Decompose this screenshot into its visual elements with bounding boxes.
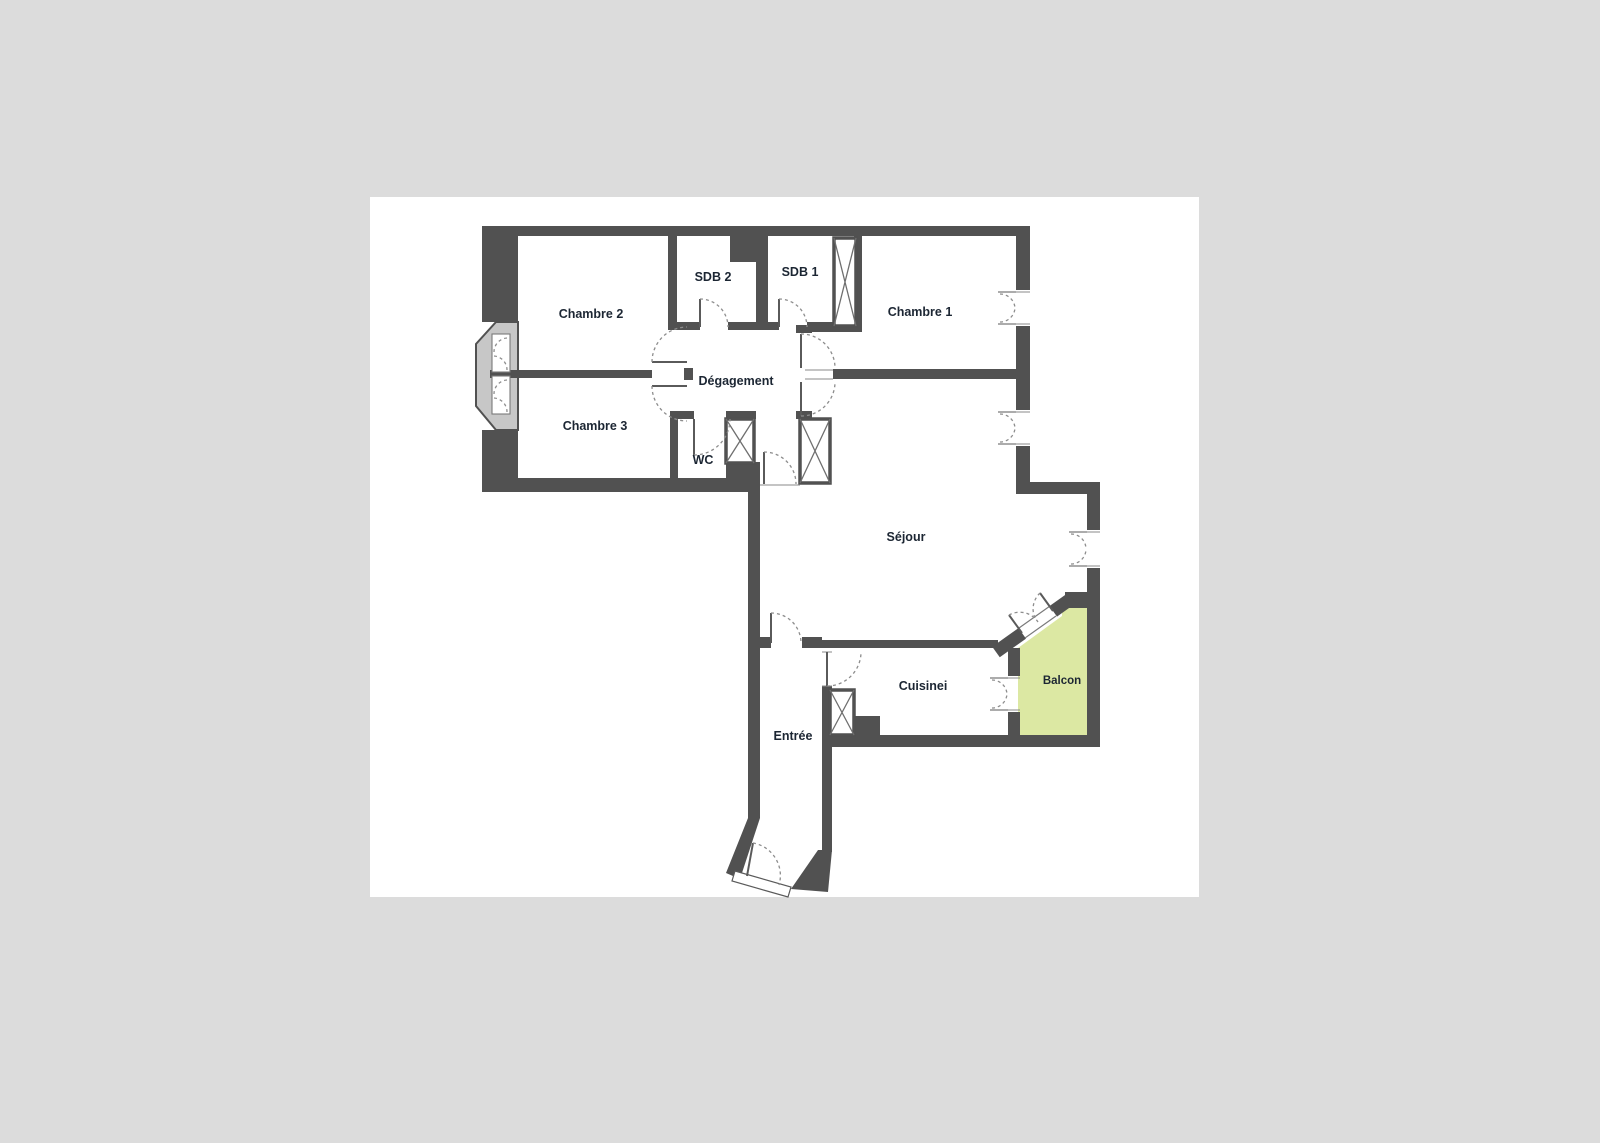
wall-stub-sejour-door-left bbox=[760, 637, 771, 648]
wall-stub-sejour-door-right bbox=[802, 637, 822, 648]
wall-right-c bbox=[1016, 446, 1030, 482]
duct-icon-wc bbox=[726, 419, 754, 463]
wall-sdb2-sdb1 bbox=[756, 236, 768, 330]
wall-cuisine-right-upper bbox=[1008, 648, 1020, 676]
room-label-chambre-3: Chambre 3 bbox=[563, 419, 628, 433]
window-bay-chambre3 bbox=[492, 376, 510, 414]
room-label-sdb-2: SDB 2 bbox=[695, 270, 732, 284]
wall-cuisine-top bbox=[822, 640, 998, 648]
wall-right-lower-a bbox=[1087, 494, 1100, 530]
room-label-entree: Entrée bbox=[774, 729, 813, 743]
duct-icon-cuisine bbox=[830, 690, 854, 735]
floor-plan-canvas: Chambre 2 SDB 2 SDB 1 Chambre 1 Dégageme… bbox=[0, 0, 1600, 1143]
wall-stub-doubledoor-top bbox=[796, 325, 812, 333]
wall-divider-ch2-ch3 bbox=[490, 370, 652, 378]
room-label-chambre-1: Chambre 1 bbox=[888, 305, 953, 319]
wall-hinge-post bbox=[684, 368, 693, 380]
floor-plan: Chambre 2 SDB 2 SDB 1 Chambre 1 Dégageme… bbox=[0, 0, 1600, 1143]
wall-right-b bbox=[1016, 326, 1030, 410]
wall-divider-ch1-sejour bbox=[833, 369, 1016, 379]
wall-under-sdb2-left bbox=[677, 322, 700, 330]
room-label-cuisine: Cuisinei bbox=[899, 679, 948, 693]
wall-cuisine-step bbox=[854, 716, 880, 735]
wall-stub-wc-top bbox=[670, 411, 694, 419]
wall-left-upper bbox=[482, 226, 518, 322]
window-bay-chambre2 bbox=[492, 334, 510, 372]
room-label-wc: WC bbox=[693, 453, 714, 467]
room-label-balcon: Balcon bbox=[1043, 675, 1081, 687]
room-label-chambre-2: Chambre 2 bbox=[559, 307, 624, 321]
wall-right-a bbox=[1016, 226, 1030, 290]
duct-icon-sejour bbox=[800, 419, 830, 483]
wall-under-sdb2-right bbox=[728, 322, 768, 330]
wall-sejour-entree-left bbox=[748, 478, 760, 818]
room-label-degagement: Dégagement bbox=[698, 374, 774, 388]
wall-bottom-left bbox=[482, 478, 760, 492]
room-label-sdb-1: SDB 1 bbox=[782, 265, 819, 279]
wall-step-out bbox=[1016, 482, 1100, 494]
duct-icon-sdb1 bbox=[834, 238, 856, 326]
wall-top bbox=[482, 226, 1030, 236]
wall-chambre2-sdb2 bbox=[668, 236, 677, 330]
room-label-sejour: Séjour bbox=[887, 530, 926, 544]
wall-left-lower bbox=[482, 430, 518, 478]
wall-bottom-right bbox=[830, 735, 1100, 747]
wall-under-sdb1-left bbox=[768, 322, 779, 330]
wall-cuisine-right-lower bbox=[1008, 712, 1020, 735]
wall-chambre3-wc bbox=[670, 418, 678, 478]
